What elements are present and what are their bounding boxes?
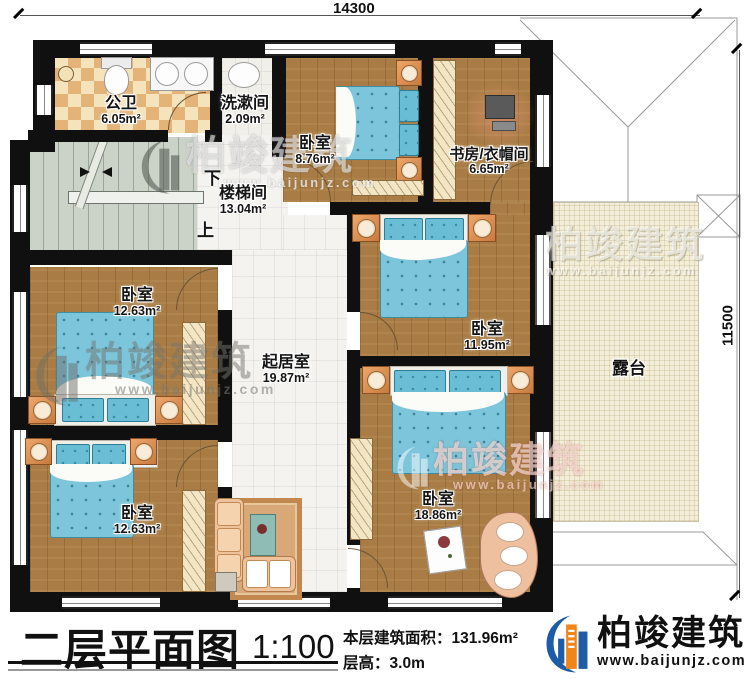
window: [35, 85, 53, 115]
nightstand: [362, 366, 390, 394]
wall: [28, 130, 168, 142]
wardrobe: [433, 60, 456, 200]
room-label-stairwell: 楼梯间 13.04m²: [200, 186, 286, 216]
right-dimension-label: 11500: [720, 296, 737, 356]
nightstand: [25, 438, 52, 465]
flower-icon: [438, 536, 450, 548]
sofa-cushion: [217, 528, 241, 552]
shower-head: [58, 66, 74, 82]
floor-height-value: 3.0m: [390, 655, 425, 672]
nightstand: [506, 366, 534, 394]
floor-area-row: 本层建筑面积：131.96m²: [343, 627, 518, 652]
chaise-cushion: [500, 546, 528, 566]
window: [12, 185, 28, 232]
window: [62, 596, 160, 609]
nightstand: [130, 438, 157, 465]
room-label-bedroom-botleft: 卧室 12.63m²: [95, 506, 179, 536]
pillow: [56, 444, 90, 466]
title-underline: [8, 669, 338, 671]
window: [12, 292, 28, 397]
chaise-cushion: [496, 522, 524, 542]
floor-area-value: 131.96m²: [452, 630, 518, 647]
room-label-terrace: 露台: [587, 360, 671, 378]
stair-up-label: 上: [197, 216, 214, 241]
room-label-bedroom-top: 卧室 8.76m²: [273, 136, 357, 166]
room-label-study: 书房/衣帽间 6.65m²: [439, 147, 539, 176]
plant-icon: [257, 524, 267, 534]
keyboard-icon: [492, 121, 516, 131]
window: [495, 42, 521, 56]
brand-url: www.baijunjz.com: [597, 653, 746, 669]
floor-plan-page: { "dimensions": { "top": "14300", "right…: [0, 0, 750, 679]
plan-info: 本层建筑面积：131.96m² 层高：3.0m: [343, 627, 518, 677]
chaise-cushion: [494, 570, 522, 590]
room-label-bedroom-botright: 卧室 18.86m²: [396, 492, 480, 522]
window: [80, 42, 152, 56]
living-room-floor: [283, 215, 347, 250]
terrace-sliding-door: [535, 432, 551, 518]
nightstand: [468, 214, 496, 242]
wardrobe: [350, 438, 373, 540]
sofa-cushion: [269, 560, 291, 588]
title-underline: [8, 661, 338, 664]
side-table: [215, 572, 237, 592]
nightstand: [155, 396, 183, 424]
wardrobe: [182, 322, 206, 425]
pillow: [449, 370, 501, 394]
wardrobe: [182, 490, 206, 592]
pillow: [399, 124, 419, 156]
coffee-table: [250, 514, 276, 556]
nightstand: [28, 396, 56, 424]
top-dimension-label: 14300: [333, 0, 375, 17]
toilet-bowl: [104, 65, 129, 95]
computer-monitor-icon: [485, 95, 515, 119]
sofa-cushion: [217, 502, 241, 526]
room-label-washroom: 洗漱间 2.09m²: [203, 96, 287, 126]
pillow: [92, 444, 126, 466]
dim-tick: [13, 8, 24, 19]
wash-sink: [228, 62, 260, 88]
brand-logo-icon: [540, 612, 594, 676]
wall: [28, 250, 232, 265]
wall: [347, 588, 360, 612]
pillow: [394, 370, 446, 394]
bench: [352, 180, 424, 196]
stair-arrow: [80, 167, 90, 177]
floor-height-label: 层高：: [343, 655, 390, 672]
floor-height-row: 层高：3.0m: [343, 652, 518, 677]
room-label-bedroom-midleft: 卧室 12.63m²: [95, 288, 179, 318]
room-label-living: 起居室 19.87m²: [244, 355, 328, 385]
right-dimension-line: [739, 50, 740, 598]
pillow: [399, 90, 419, 122]
nightstand: [396, 60, 422, 86]
sofa-cushion: [246, 560, 268, 588]
pillow: [107, 398, 149, 422]
room-label-bedroom-midright: 卧室 11.95m²: [445, 322, 529, 352]
wall: [218, 310, 232, 442]
sink-basin: [184, 62, 208, 86]
window: [388, 596, 502, 609]
terrace-sliding-door: [535, 235, 551, 325]
brand-name: 柏竣建筑: [597, 616, 745, 651]
window: [265, 42, 395, 56]
room-label-bathroom: 公卫 6.05m²: [79, 96, 163, 126]
floor-area-label: 本层建筑面积：: [343, 630, 452, 647]
pillow: [62, 398, 104, 422]
sink-basin: [155, 62, 179, 86]
art-board: [423, 526, 467, 575]
pillow: [384, 218, 423, 242]
pillow: [425, 218, 464, 242]
stair-arrow: [102, 167, 112, 177]
nightstand: [352, 214, 380, 242]
